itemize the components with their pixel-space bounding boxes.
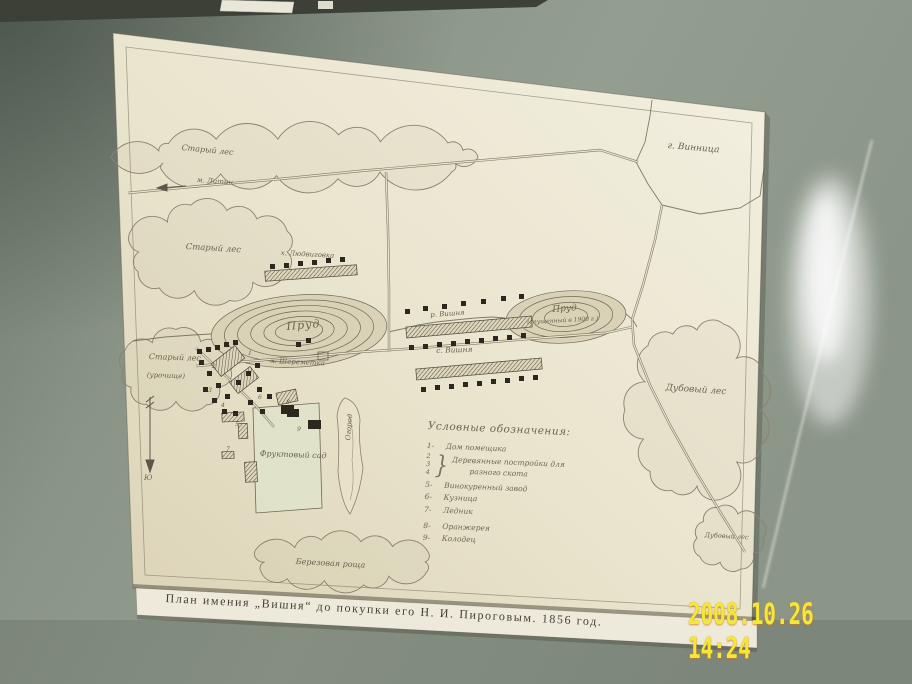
old-forest-sw-sublabel: (урочище) <box>147 371 185 380</box>
building-small <box>493 336 498 341</box>
building-small <box>423 306 428 311</box>
building-small <box>340 257 345 262</box>
building-small <box>449 384 454 389</box>
building-hatched <box>238 423 248 438</box>
building-small <box>481 299 486 304</box>
building-hatched <box>244 462 257 483</box>
legend-brace: } <box>434 449 448 480</box>
legend-item-7: 7- Ледник <box>424 504 567 519</box>
building-small <box>533 375 538 380</box>
legend-item-group-2-3-4: 2 3 4 } Деревянные постройки для разного… <box>426 452 570 482</box>
building-small <box>212 398 217 403</box>
building-solid <box>281 405 294 414</box>
map-marker-8: 8 <box>286 399 290 406</box>
building-small <box>505 378 510 383</box>
building-small <box>296 342 301 347</box>
building-small <box>477 381 482 386</box>
building-small <box>225 394 230 399</box>
building-small <box>501 296 506 301</box>
map-marker-9: 9 <box>297 426 301 433</box>
building-small <box>491 379 496 384</box>
frame-label-tab <box>220 0 294 13</box>
building-small <box>312 260 317 265</box>
map-legend: Условные обозначения: 1- Дом помещика 2 … <box>423 420 571 548</box>
old-forest-sw-label: Старый лес <box>149 352 201 363</box>
map-marker-5: 5 <box>235 421 239 428</box>
building-small <box>267 394 272 399</box>
building-small <box>479 338 484 343</box>
map-artwork <box>0 0 912 684</box>
frame-label-tab-small <box>318 1 333 9</box>
building-small <box>507 335 512 340</box>
village-label: с. Вишня <box>436 345 473 355</box>
map-marker-7: 7 <box>226 446 230 453</box>
building-small <box>257 387 262 392</box>
museum-photo-scene: Старый лес м. Литин г. Винница Старый ле… <box>0 0 912 684</box>
glass-reflection <box>788 175 872 425</box>
building-small <box>405 309 410 314</box>
map-marker-6: 6 <box>258 394 262 401</box>
building-small <box>255 363 260 368</box>
building-small <box>248 400 253 405</box>
building-small <box>222 409 227 414</box>
building-small <box>409 345 414 350</box>
building-small <box>284 263 289 268</box>
building-small <box>233 411 238 416</box>
building-small <box>519 376 524 381</box>
building-small <box>233 340 238 345</box>
building-solid <box>308 420 321 429</box>
building-small <box>236 380 241 385</box>
camera-timestamp: 2008.10.26 14:24 <box>688 597 849 665</box>
building-small <box>246 371 251 376</box>
building-small <box>216 383 221 388</box>
building-small <box>260 409 265 414</box>
building-small <box>421 387 426 392</box>
south-label: Ю <box>144 474 152 482</box>
map-marker-4: 4 <box>221 402 225 409</box>
building-small <box>207 371 212 376</box>
building-small <box>306 338 311 343</box>
building-small <box>521 333 526 338</box>
pond-right-label: Пруд <box>552 303 577 315</box>
building-small <box>463 382 468 387</box>
building-small <box>435 385 440 390</box>
building-small <box>215 345 220 350</box>
building-small <box>442 304 447 309</box>
building-small <box>519 294 524 299</box>
building-small <box>270 264 275 269</box>
building-small <box>298 261 303 266</box>
map-marker-2: 2 <box>212 363 216 370</box>
building-small <box>423 344 428 349</box>
building-small <box>224 342 229 347</box>
building-small <box>461 301 466 306</box>
building-small <box>465 339 470 344</box>
map-marker-3: 3 <box>208 387 212 394</box>
building-small <box>206 347 211 352</box>
map-marker-1: 1 <box>248 350 252 357</box>
